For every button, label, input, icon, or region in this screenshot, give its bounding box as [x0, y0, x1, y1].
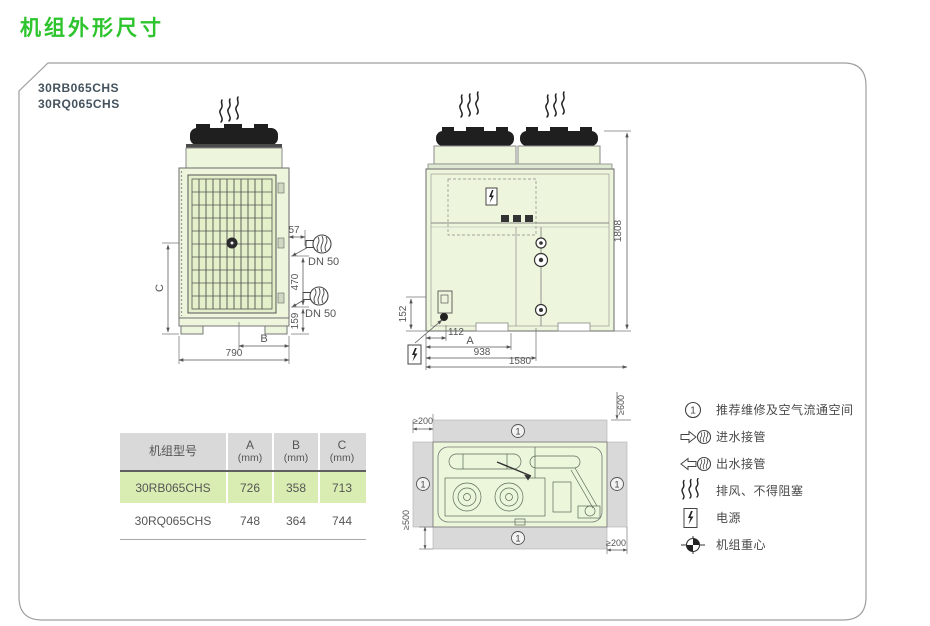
model-names: 30RB065CHS 30RQ065CHS [38, 80, 120, 112]
svg-text:1: 1 [690, 405, 696, 416]
power-icon [486, 188, 497, 205]
legend-item-gravity-center: 机组重心 [680, 531, 895, 558]
zone-mark-right: 1 [611, 478, 624, 491]
table-row: 30RQ065CHS 748 364 744 [120, 503, 366, 539]
catalog-page: 机组外形尺寸 30RB065CHS 30RQ065CHS [0, 0, 930, 626]
water-pipe-icon-top [306, 235, 331, 253]
fan-top-cap [190, 128, 278, 145]
header-b: B (mm) [272, 433, 318, 470]
legend-item-service-space: 1 推荐维修及空气流通空间 [680, 396, 895, 423]
zone-mark-top: 1 [512, 425, 525, 438]
power-entry-point [440, 313, 448, 321]
model-name-2: 30RQ065CHS [38, 96, 120, 112]
legend-item-power: 电源 [680, 504, 895, 531]
clearance-top-right: ≥600 [616, 395, 626, 415]
clearance-top-left: ≥200 [413, 416, 433, 426]
svg-text:1: 1 [515, 427, 520, 437]
table-header-row: 机组型号 A (mm) B (mm) C (mm) [120, 433, 366, 472]
table-row: 30RB065CHS 726 358 713 [120, 472, 366, 503]
dim-790: 790 [226, 348, 243, 359]
zone-number-icon: 1 [680, 401, 716, 419]
zone-mark-bottom: 1 [512, 532, 525, 545]
side-view-drawing: 57 DN 50 DN 50 470 159 C B 790 [148, 88, 400, 388]
model-name-1: 30RB065CHS [38, 80, 120, 96]
gravity-center-icon [680, 535, 716, 555]
power-icon [408, 345, 421, 364]
header-a: A (mm) [226, 433, 272, 470]
exhaust-steam-icon [546, 92, 564, 117]
dn50-bottom-label: DN 50 [305, 308, 336, 320]
top-view-unit [433, 442, 607, 527]
svg-text:1: 1 [420, 480, 425, 490]
dim-C: C [154, 284, 166, 292]
water-pipe-icon-bottom [303, 287, 328, 305]
exhaust-icon [680, 480, 716, 502]
legend-item-water-outlet: 出水接管 [680, 450, 895, 477]
clearance-bottom-right: ≥200 [606, 538, 626, 548]
top-view-clearance-drawing: 1 1 1 1 ≥200 ≥600 ≥500 ≥200 [385, 378, 657, 573]
front-view-unit [426, 127, 614, 331]
dim-938: 938 [474, 347, 491, 358]
legend: 1 推荐维修及空气流通空间 进水接管 出水接管 [680, 396, 895, 558]
clearance-bottom-left: ≥500 [401, 510, 411, 530]
dim-1808: 1808 [613, 219, 624, 242]
dim-470: 470 [290, 273, 301, 290]
exhaust-steam-icon [220, 97, 238, 122]
fan-top-cap-left [436, 131, 514, 146]
dim-159: 159 [290, 312, 301, 329]
power-icon [680, 507, 716, 529]
dim-57: 57 [288, 225, 300, 236]
dim-1580: 1580 [509, 356, 532, 367]
exhaust-steam-icon [460, 92, 478, 117]
dn50-top-label: DN 50 [308, 256, 339, 268]
legend-item-water-inlet: 进水接管 [680, 423, 895, 450]
water-inlet-icon [680, 428, 716, 446]
header-model: 机组型号 [120, 433, 226, 470]
svg-text:1: 1 [614, 480, 619, 490]
water-outlet-icon [680, 455, 716, 473]
side-view-unit [179, 124, 289, 334]
front-view-drawing: 1808 152 112 A 938 1580 [398, 85, 668, 397]
dim-112: 112 [448, 327, 464, 338]
legend-item-exhaust: 排风、不得阻塞 [680, 477, 895, 504]
svg-text:1: 1 [515, 534, 520, 544]
fan-top-cap-right [520, 131, 598, 146]
dim-152: 152 [398, 305, 409, 322]
dim-A: A [466, 335, 474, 347]
dimension-table: 机组型号 A (mm) B (mm) C (mm) 30RB065CHS 726… [120, 433, 366, 540]
zone-mark-left: 1 [417, 478, 430, 491]
dim-B: B [260, 333, 267, 345]
header-c: C (mm) [318, 433, 364, 470]
